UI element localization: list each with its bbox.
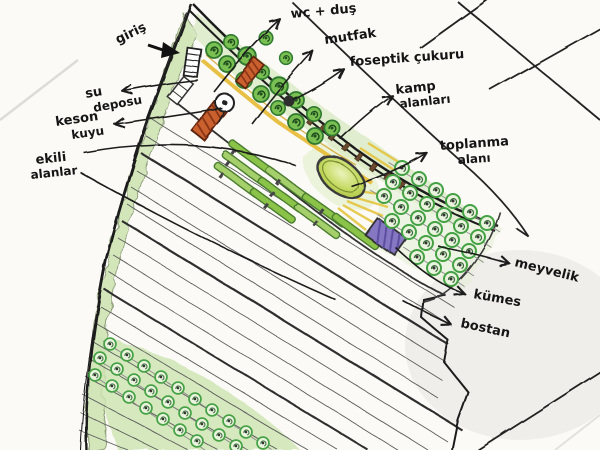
site-plan-sketch: giriş wc + duş mutfak foseptik çukuru ka… bbox=[0, 0, 600, 450]
leader-foseptik bbox=[293, 70, 343, 100]
water-tank bbox=[183, 47, 201, 77]
leader-kamp bbox=[340, 96, 391, 139]
label-mutfak: mutfak bbox=[323, 26, 377, 48]
label-giris: giriş bbox=[113, 20, 149, 48]
label-toplanma-line2: alanı bbox=[457, 151, 491, 167]
sketch-canvas: giriş wc + duş mutfak foseptik çukuru ka… bbox=[0, 0, 600, 450]
septic-pit-dot bbox=[284, 96, 295, 107]
label-wc-dus: wc + duş bbox=[290, 1, 357, 22]
label-foseptik: foseptik çukuru bbox=[349, 47, 465, 70]
